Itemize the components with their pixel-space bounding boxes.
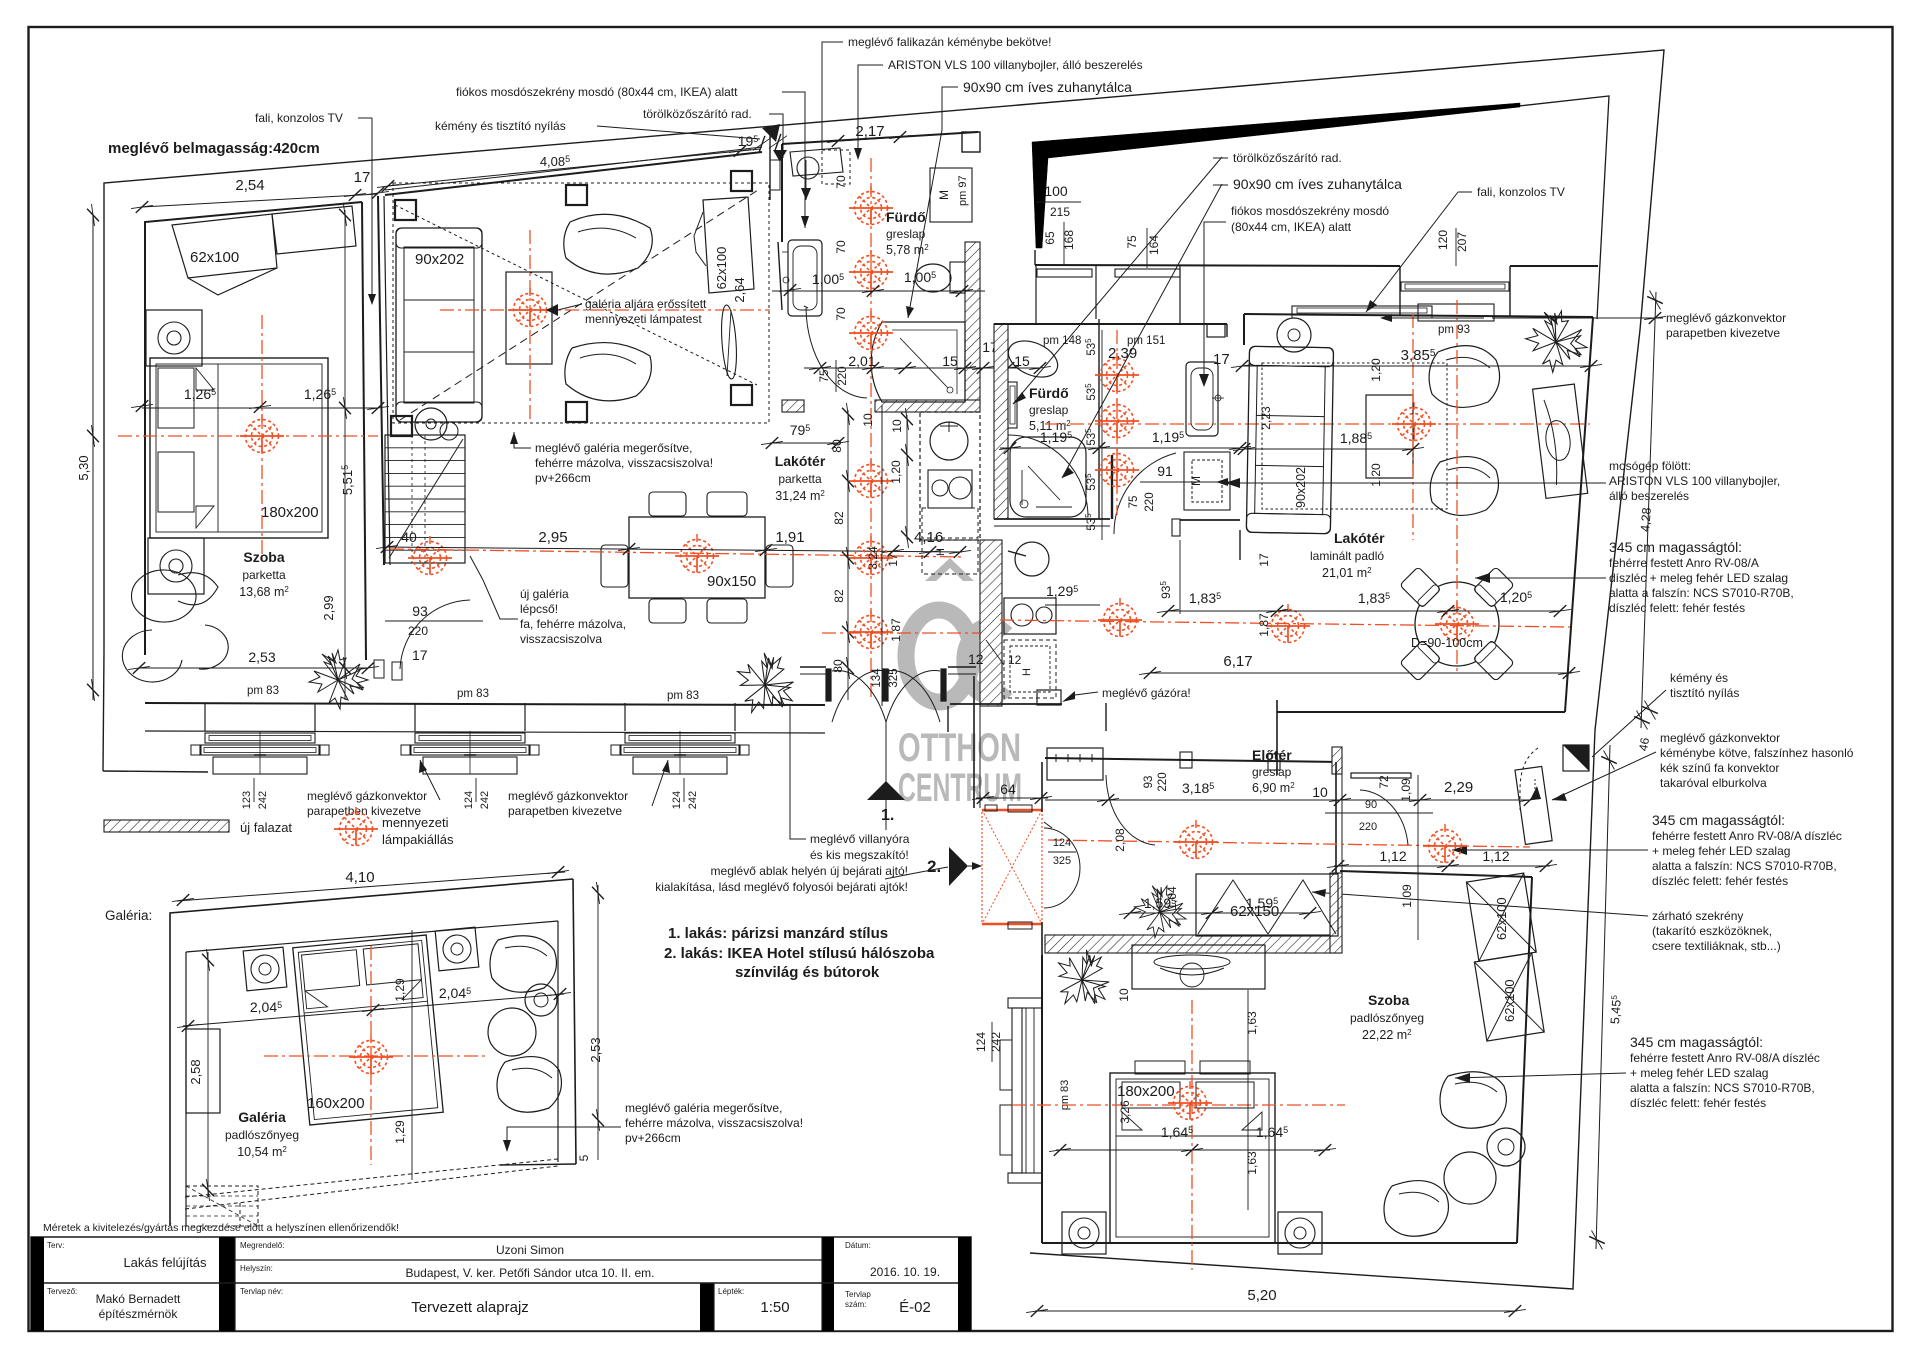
svg-text:Fürdő: Fürdő bbox=[1029, 385, 1069, 401]
svg-text:Galéria: Galéria bbox=[238, 1109, 286, 1125]
svg-text:Lakótér: Lakótér bbox=[775, 453, 826, 469]
svg-text:124: 124 bbox=[463, 791, 475, 809]
svg-text:75: 75 bbox=[1125, 235, 1139, 249]
svg-text:2,54: 2,54 bbox=[235, 177, 264, 194]
svg-text:1,87: 1,87 bbox=[1257, 613, 1271, 637]
svg-text:szám:: szám: bbox=[845, 1300, 866, 1309]
svg-text:Megrendelő:: Megrendelő: bbox=[240, 1241, 284, 1250]
svg-text:pv+266cm: pv+266cm bbox=[625, 1131, 681, 1145]
svg-text:5,78 m2: 5,78 m2 bbox=[886, 243, 929, 257]
svg-text:2,53: 2,53 bbox=[588, 1037, 603, 1062]
svg-text:pm 83: pm 83 bbox=[457, 688, 489, 700]
svg-text:46: 46 bbox=[1636, 736, 1652, 752]
svg-text:2.: 2. bbox=[927, 857, 941, 876]
svg-text:5,20: 5,20 bbox=[1247, 1287, 1276, 1304]
svg-text:6,17: 6,17 bbox=[1223, 653, 1252, 670]
svg-text:15: 15 bbox=[942, 353, 958, 369]
svg-text:242: 242 bbox=[687, 791, 699, 809]
svg-text:fiókos mosdószekrény mosdó: fiókos mosdószekrény mosdó bbox=[1231, 204, 1389, 218]
svg-text:120: 120 bbox=[1436, 230, 1450, 250]
svg-text:ARISTON VLS 100 villanybojler,: ARISTON VLS 100 villanybojler, álló besz… bbox=[888, 58, 1143, 72]
svg-text:91: 91 bbox=[1157, 463, 1173, 479]
svg-text:10: 10 bbox=[861, 413, 875, 427]
svg-text:10: 10 bbox=[1117, 988, 1131, 1002]
svg-text:lépcső!: lépcső! bbox=[520, 602, 558, 616]
svg-text:Budapest, V. ker. Petőfi Sándo: Budapest, V. ker. Petőfi Sándor utca 10.… bbox=[405, 1266, 654, 1280]
svg-text:65: 65 bbox=[1043, 231, 1057, 245]
svg-text:1,29: 1,29 bbox=[393, 978, 407, 1002]
svg-text:É-02: É-02 bbox=[899, 1299, 931, 1316]
svg-text:kialakítása, lásd meglévő foly: kialakítása, lásd meglévő folyosói bejár… bbox=[655, 880, 908, 894]
svg-text:124: 124 bbox=[671, 791, 683, 809]
svg-text:62x100: 62x100 bbox=[1502, 979, 1517, 1022]
svg-text:215: 215 bbox=[1050, 205, 1070, 219]
svg-text:220: 220 bbox=[1144, 492, 1156, 511]
svg-text:greslap: greslap bbox=[1029, 403, 1069, 417]
svg-text:Tervlap: Tervlap bbox=[845, 1290, 871, 1299]
svg-text:OTTHON: OTTHON bbox=[898, 726, 1021, 770]
svg-text:220: 220 bbox=[408, 624, 428, 638]
svg-text:meglévő galéria megerősítve,: meglévő galéria megerősítve, bbox=[535, 441, 692, 455]
svg-text:90: 90 bbox=[1365, 799, 1377, 811]
svg-text:1,29: 1,29 bbox=[393, 1120, 407, 1144]
svg-text:10: 10 bbox=[1312, 784, 1328, 800]
svg-text:fiókos mosdószekrény mosdó (80: fiókos mosdószekrény mosdó (80x44 cm, IK… bbox=[456, 85, 738, 99]
svg-text:+ meleg fehér LED szalag: + meleg fehér LED szalag bbox=[1630, 1066, 1768, 1080]
svg-text:fehérre festett Anro RV-08/A d: fehérre festett Anro RV-08/A díszléc bbox=[1652, 829, 1842, 843]
svg-text:díszléc felett: fehér festés: díszléc felett: fehér festés bbox=[1630, 1096, 1766, 1110]
svg-text:tisztító nyílás: tisztító nyílás bbox=[1670, 686, 1739, 700]
svg-text:12: 12 bbox=[1008, 653, 1022, 667]
svg-text:93: 93 bbox=[1143, 776, 1155, 789]
svg-text:31,24 m2: 31,24 m2 bbox=[775, 489, 825, 503]
svg-text:pm 93: pm 93 bbox=[1438, 324, 1470, 336]
svg-text:90x90 cm íves zuhanytálca: 90x90 cm íves zuhanytálca bbox=[1233, 176, 1402, 192]
svg-text:(takarító eszközöknek,: (takarító eszközöknek, bbox=[1652, 924, 1772, 938]
svg-text:1,20: 1,20 bbox=[889, 460, 903, 484]
svg-text:meglévő gázkonvektor: meglévő gázkonvektor bbox=[307, 789, 427, 803]
svg-text:Fürdő: Fürdő bbox=[886, 209, 926, 225]
svg-text:Galéria:: Galéria: bbox=[105, 908, 152, 923]
svg-text:(80x44 cm, IKEA) alatt: (80x44 cm, IKEA) alatt bbox=[1231, 220, 1352, 234]
svg-text:Lakótér: Lakótér bbox=[1334, 530, 1385, 546]
svg-text:pm 83: pm 83 bbox=[667, 690, 699, 702]
svg-text:3,26: 3,26 bbox=[1118, 1100, 1132, 1124]
svg-text:17: 17 bbox=[354, 169, 371, 186]
svg-text:színvilág és bútorok: színvilág és bútorok bbox=[735, 964, 880, 981]
svg-text:1. lakás: párizsi manzárd stíl: 1. lakás: párizsi manzárd stílus bbox=[668, 925, 888, 942]
svg-text:180x200: 180x200 bbox=[1117, 1083, 1175, 1100]
svg-text:10,54 m2: 10,54 m2 bbox=[237, 1145, 287, 1159]
svg-text:345 cm magasságtól:: 345 cm magasságtól: bbox=[1630, 1034, 1763, 1050]
svg-text:1,20: 1,20 bbox=[1369, 358, 1383, 382]
svg-text:6,90 m2: 6,90 m2 bbox=[1252, 781, 1295, 795]
svg-text:mennyezeti lámpatest: mennyezeti lámpatest bbox=[585, 312, 702, 326]
svg-text:kéménybe kötve, falszínhez has: kéménybe kötve, falszínhez hasonló bbox=[1660, 746, 1854, 760]
svg-text:törölközőszárító rad.: törölközőszárító rad. bbox=[1233, 151, 1342, 165]
svg-text:és kis megszakító!: és kis megszakító! bbox=[810, 848, 909, 862]
svg-text:17: 17 bbox=[1213, 351, 1230, 368]
svg-text:2,23: 2,23 bbox=[1259, 406, 1273, 430]
svg-text:greslap: greslap bbox=[886, 227, 926, 241]
svg-text:80: 80 bbox=[830, 439, 844, 453]
svg-text:90x90 cm íves zuhanytálca: 90x90 cm íves zuhanytálca bbox=[963, 79, 1132, 95]
svg-text:242: 242 bbox=[989, 1032, 1003, 1052]
svg-text:2,64: 2,64 bbox=[732, 277, 747, 302]
svg-text:Tervlap név:: Tervlap név: bbox=[240, 1287, 283, 1296]
svg-text:2016. 10. 19.: 2016. 10. 19. bbox=[870, 1265, 940, 1279]
svg-text:40: 40 bbox=[401, 529, 417, 545]
svg-text:62x100: 62x100 bbox=[714, 247, 729, 290]
svg-text:75: 75 bbox=[1128, 496, 1140, 509]
svg-text:mennyezeti: mennyezeti bbox=[382, 815, 449, 830]
svg-text:greslap: greslap bbox=[1252, 765, 1292, 779]
svg-text:törölközőszárító rad.: törölközőszárító rad. bbox=[643, 107, 752, 121]
svg-text:laminált padló: laminált padló bbox=[1310, 549, 1384, 563]
svg-text:90x150: 90x150 bbox=[707, 573, 756, 590]
svg-text:pm 83: pm 83 bbox=[247, 685, 279, 697]
svg-text:meglévő belmagasság:420cm: meglévő belmagasság:420cm bbox=[108, 140, 320, 157]
svg-text:M: M bbox=[937, 190, 951, 200]
svg-text:Lakás felújítás: Lakás felújítás bbox=[123, 1255, 207, 1270]
svg-text:H: H bbox=[935, 548, 947, 556]
svg-text:parapetben kivezetve: parapetben kivezetve bbox=[1666, 326, 1780, 340]
svg-text:5: 5 bbox=[577, 1154, 591, 1161]
svg-text:visszacsiszolva: visszacsiszolva bbox=[520, 632, 602, 646]
svg-text:2,08: 2,08 bbox=[1113, 828, 1127, 852]
svg-text:alatta a falszín: NCS S7010-R7: alatta a falszín: NCS S7010-R70B, bbox=[1609, 586, 1794, 600]
svg-text:Méretek a kivitelezés/gyártás: Méretek a kivitelezés/gyártás megkezdése… bbox=[43, 1222, 399, 1234]
svg-text:M: M bbox=[1189, 476, 1203, 486]
svg-text:fehérre festett Anro RV-08/A d: fehérre festett Anro RV-08/A díszléc bbox=[1630, 1051, 1820, 1065]
svg-text:75: 75 bbox=[819, 370, 831, 383]
svg-text:123: 123 bbox=[241, 791, 253, 809]
svg-text:220: 220 bbox=[1359, 821, 1377, 833]
svg-text:2,58: 2,58 bbox=[188, 1059, 203, 1084]
svg-text:galéria aljára erőssített: galéria aljára erőssített bbox=[585, 297, 707, 311]
svg-text:építészmérnök: építészmérnök bbox=[99, 1307, 179, 1321]
svg-text:pv+266cm: pv+266cm bbox=[535, 471, 591, 485]
svg-text:1,09: 1,09 bbox=[1399, 778, 1413, 802]
svg-text:meglévő ablak helyén új bejára: meglévő ablak helyén új bejárati ajtó! bbox=[711, 864, 908, 878]
svg-text:4,10: 4,10 bbox=[345, 869, 374, 886]
svg-text:meglévő gázkonvektor: meglévő gázkonvektor bbox=[508, 789, 628, 803]
svg-text:325: 325 bbox=[888, 668, 900, 687]
svg-text:1.: 1. bbox=[881, 807, 894, 824]
svg-text:pm 83: pm 83 bbox=[1059, 1080, 1071, 1111]
svg-text:1,09: 1,09 bbox=[1400, 884, 1414, 908]
svg-text:10: 10 bbox=[890, 419, 904, 433]
svg-text:62x100: 62x100 bbox=[190, 249, 239, 266]
svg-text:meglévő villanyóra: meglévő villanyóra bbox=[810, 832, 910, 846]
svg-text:Terv:: Terv: bbox=[47, 1241, 64, 1250]
svg-text:fehérre mázolva, visszacsiszol: fehérre mázolva, visszacsiszolva! bbox=[625, 1116, 803, 1130]
svg-text:70: 70 bbox=[834, 307, 848, 321]
svg-text:padlószőnyeg: padlószőnyeg bbox=[225, 1128, 299, 1142]
svg-text:21,01 m2: 21,01 m2 bbox=[1322, 566, 1372, 580]
svg-text:64: 64 bbox=[1000, 781, 1016, 797]
svg-text:padlószőnyeg: padlószőnyeg bbox=[1350, 1011, 1424, 1025]
svg-text:Lépték:: Lépték: bbox=[718, 1287, 744, 1296]
svg-text:2,29: 2,29 bbox=[1444, 779, 1473, 796]
svg-text:325: 325 bbox=[1053, 855, 1071, 867]
svg-text:1,04: 1,04 bbox=[1165, 886, 1179, 910]
svg-text:17: 17 bbox=[1257, 553, 1271, 567]
svg-text:207: 207 bbox=[1455, 232, 1469, 252]
svg-text:12: 12 bbox=[968, 651, 984, 667]
svg-text:meglévő gázkonvektor: meglévő gázkonvektor bbox=[1666, 311, 1786, 325]
svg-text:345 cm magasságtól:: 345 cm magasságtól: bbox=[1609, 539, 1742, 555]
svg-text:134: 134 bbox=[871, 668, 883, 688]
svg-text:4,28: 4,28 bbox=[1638, 507, 1654, 532]
svg-text:parapetben kivezetve: parapetben kivezetve bbox=[508, 804, 622, 818]
svg-text:álló beszerelés: álló beszerelés bbox=[1609, 489, 1689, 503]
svg-text:meglévő gázóra!: meglévő gázóra! bbox=[1102, 686, 1191, 700]
svg-text:Helyszín:: Helyszín: bbox=[240, 1264, 273, 1273]
svg-text:220: 220 bbox=[1157, 772, 1169, 791]
svg-text:ARISTON VLS 100 villanybojler,: ARISTON VLS 100 villanybojler, bbox=[1609, 474, 1780, 488]
svg-text:alatta a falszín: NCS S7010-R7: alatta a falszín: NCS S7010-R70B, bbox=[1630, 1081, 1815, 1095]
svg-text:82: 82 bbox=[832, 589, 846, 603]
svg-text:H: H bbox=[1021, 668, 1033, 676]
svg-text:díszléc felett: fehér festés: díszléc felett: fehér festés bbox=[1609, 601, 1745, 615]
svg-text:Tervező:: Tervező: bbox=[47, 1287, 77, 1296]
svg-text:meglévő gázkonvektor: meglévő gázkonvektor bbox=[1660, 731, 1780, 745]
svg-text:kémény és: kémény és bbox=[1670, 671, 1728, 685]
svg-text:72: 72 bbox=[1377, 775, 1391, 789]
svg-text:3,24: 3,24 bbox=[866, 546, 880, 570]
svg-text:2,17: 2,17 bbox=[855, 123, 884, 140]
svg-text:új falazat: új falazat bbox=[240, 820, 292, 835]
svg-text:új galéria: új galéria bbox=[520, 587, 569, 601]
svg-text:90x202: 90x202 bbox=[1294, 467, 1308, 508]
svg-text:242: 242 bbox=[479, 791, 491, 809]
svg-text:fa, fehérre mázolva,: fa, fehérre mázolva, bbox=[520, 617, 626, 631]
svg-text:D=90-100cm: D=90-100cm bbox=[1411, 636, 1483, 650]
svg-text:345 cm magasságtól:: 345 cm magasságtól: bbox=[1652, 812, 1785, 828]
svg-text:fehérre mázolva, visszacsiszol: fehérre mázolva, visszacsiszolva! bbox=[535, 456, 713, 470]
svg-text:Uzoni Simon: Uzoni Simon bbox=[496, 1243, 564, 1257]
svg-text:70: 70 bbox=[834, 175, 848, 189]
svg-text:Tervezett alaprajz: Tervezett alaprajz bbox=[411, 1299, 529, 1316]
svg-text:242: 242 bbox=[257, 791, 269, 809]
svg-text:díszléc felett: fehér festés: díszléc felett: fehér festés bbox=[1652, 874, 1788, 888]
svg-text:124: 124 bbox=[974, 1032, 988, 1052]
svg-text:Dátum:: Dátum: bbox=[845, 1241, 871, 1250]
svg-text:22,22 m2: 22,22 m2 bbox=[1362, 1028, 1412, 1042]
svg-text:meglévő falikazán kéménybe bek: meglévő falikazán kéménybe bekötve! bbox=[848, 35, 1051, 49]
svg-text:mosógép fölött:: mosógép fölött: bbox=[1609, 459, 1691, 473]
svg-text:2,01: 2,01 bbox=[848, 353, 875, 369]
svg-text:alatta a falszín: NCS S7010-R7: alatta a falszín: NCS S7010-R70B, bbox=[1652, 859, 1837, 873]
svg-text:Makó Bernadett: Makó Bernadett bbox=[96, 1292, 181, 1306]
svg-text:2,99: 2,99 bbox=[321, 595, 336, 620]
svg-text:díszléc + meleg fehér LED szal: díszléc + meleg fehér LED szalag bbox=[1609, 571, 1788, 585]
svg-text:5,30: 5,30 bbox=[76, 455, 91, 480]
svg-text:kék színű fa konvektor: kék színű fa konvektor bbox=[1660, 761, 1779, 775]
svg-text:parketta: parketta bbox=[242, 568, 286, 582]
svg-text:90x202: 90x202 bbox=[415, 251, 464, 268]
svg-text:1,12: 1,12 bbox=[1482, 848, 1509, 864]
svg-text:62x100: 62x100 bbox=[1494, 897, 1509, 940]
svg-text:zárható szekrény: zárható szekrény bbox=[1652, 909, 1743, 923]
svg-text:124: 124 bbox=[1053, 837, 1071, 849]
svg-text:fali, konzolos TV: fali, konzolos TV bbox=[1477, 185, 1565, 199]
svg-text:1,63: 1,63 bbox=[1245, 1151, 1259, 1175]
svg-text:70: 70 bbox=[834, 240, 848, 254]
svg-text:82: 82 bbox=[832, 511, 846, 525]
svg-text:Szoba: Szoba bbox=[1368, 992, 1409, 1008]
svg-text:2,53: 2,53 bbox=[248, 649, 275, 665]
svg-text:fehérre festett Anro RV-08/A: fehérre festett Anro RV-08/A bbox=[1609, 556, 1759, 570]
svg-text:parketta: parketta bbox=[778, 472, 822, 486]
svg-text:1,63: 1,63 bbox=[1245, 1011, 1259, 1035]
svg-text:pm 97: pm 97 bbox=[957, 175, 969, 206]
svg-text:Előtér: Előtér bbox=[1252, 747, 1292, 763]
svg-text:fali, konzolos TV: fali, konzolos TV bbox=[255, 111, 343, 125]
svg-text:1,87: 1,87 bbox=[889, 618, 903, 642]
svg-text:2. lakás: IKEA Hotel stílusú h: 2. lakás: IKEA Hotel stílusú hálószoba bbox=[664, 945, 935, 962]
svg-text:1,91: 1,91 bbox=[775, 529, 804, 546]
svg-text:1,12: 1,12 bbox=[1379, 848, 1406, 864]
svg-text:takaróval elburkolva: takaróval elburkolva bbox=[1660, 776, 1767, 790]
svg-text:kémény és tisztító nyílás: kémény és tisztító nyílás bbox=[435, 119, 566, 133]
svg-text:lámpakiállás: lámpakiállás bbox=[382, 832, 454, 847]
svg-text:220: 220 bbox=[837, 366, 849, 385]
svg-text:meglévő galéria megerősítve,: meglévő galéria megerősítve, bbox=[625, 1101, 782, 1115]
svg-text:160x200: 160x200 bbox=[307, 1095, 365, 1112]
svg-text:17: 17 bbox=[412, 647, 428, 663]
svg-text:13,68 m2: 13,68 m2 bbox=[239, 585, 289, 599]
svg-text:csere textiliáknak, stb...): csere textiliáknak, stb...) bbox=[1652, 939, 1781, 953]
svg-text:100: 100 bbox=[1044, 183, 1068, 199]
svg-text:2,95: 2,95 bbox=[538, 529, 567, 546]
svg-text:180x200: 180x200 bbox=[261, 504, 319, 521]
svg-text:+ meleg fehér LED szalag: + meleg fehér LED szalag bbox=[1652, 844, 1790, 858]
svg-text:Szoba: Szoba bbox=[243, 549, 284, 565]
svg-text:1:50: 1:50 bbox=[760, 1299, 789, 1316]
